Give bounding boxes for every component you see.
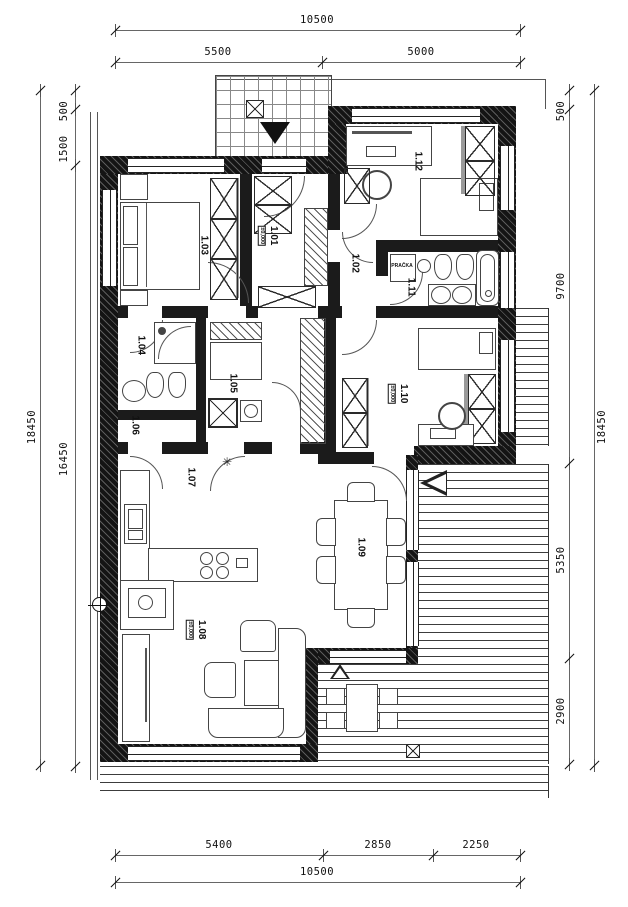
room-id: 1.12 [412, 152, 423, 171]
dining-chair [386, 556, 406, 584]
wall-interior-1.02-1.11 [376, 252, 388, 276]
room-id: 1.02 [349, 254, 360, 273]
room-label-1.02: 1.02 [349, 243, 360, 283]
dining-chair [316, 556, 336, 584]
dim-tick [588, 84, 601, 97]
door-arc-vestibule [272, 382, 301, 411]
dim-tick [69, 760, 82, 773]
wall-interior [162, 306, 208, 318]
bidet [434, 254, 452, 280]
wardrobe-corridor [300, 318, 326, 444]
wall-interior-1.04-1.05 [196, 318, 206, 442]
outdoor-table [346, 684, 378, 732]
room-id: 1.06 [129, 416, 140, 435]
dim-label-bottom-seg1: 5400 [179, 839, 259, 851]
dining-chair [347, 608, 375, 628]
paving-edge-line [90, 112, 91, 780]
deck-bottom-strip [100, 766, 549, 798]
room-label-1.11: 1.11 [405, 267, 416, 307]
wall-interior [244, 442, 272, 454]
dim-label-right-seg4: 2900 [555, 671, 567, 751]
dim-tick [563, 652, 576, 665]
window-bedroom-1.10-right [500, 340, 515, 432]
cabinet-xbox [258, 286, 316, 308]
dim-line-bottom-total [115, 882, 520, 883]
dim-label-right-seg3: 5350 [555, 520, 567, 600]
dim-tick [563, 457, 576, 470]
dim-tick [514, 56, 527, 69]
wardrobe-xbox [210, 258, 238, 300]
dim-label-right-seg1: 500 [555, 71, 567, 151]
dim-tick [563, 758, 576, 771]
dim-line-left-total [40, 90, 41, 766]
plant-icon [333, 668, 347, 678]
armchair [204, 662, 236, 698]
wall-interior [376, 306, 498, 318]
wall-interior [118, 442, 128, 454]
wardrobe-xbox [210, 178, 238, 220]
dim-line-top-total [115, 30, 520, 31]
sofa-corner [208, 708, 284, 738]
nightstand [120, 174, 148, 200]
toilet [168, 372, 186, 398]
wardrobe-xbox [465, 126, 495, 162]
nightstand [120, 290, 148, 306]
stove-burner [216, 552, 229, 565]
elevation-badge: ±0,000 [186, 619, 194, 640]
dim-tick [588, 759, 601, 772]
door-arc-1.10 [342, 320, 377, 355]
window-dining-right [406, 470, 419, 550]
dim-label-left-total: 18450 [26, 387, 38, 467]
room-label-1.12: 1.12 [412, 141, 423, 181]
dim-label-top-total: 10500 [277, 14, 357, 26]
bed-pillow [123, 247, 138, 286]
deck-post [406, 744, 420, 758]
roof-overhang-line [545, 79, 546, 109]
wall-interior [118, 306, 128, 318]
paving-edge-line [97, 112, 98, 780]
room-id: 1.07 [185, 468, 196, 487]
wardrobe-xbox [465, 160, 495, 196]
dim-tick [514, 876, 527, 889]
dim-tick [109, 876, 122, 889]
entry-door-opening [262, 158, 306, 173]
window-bath-1.11-right [500, 252, 515, 308]
outdoor-chair [326, 712, 345, 729]
wardrobe-xbox [210, 218, 238, 260]
washbasin [452, 286, 472, 304]
window-bedroom-1.03-left [102, 190, 117, 286]
room-id: 1.09 [355, 538, 366, 557]
dim-tick [69, 103, 82, 116]
bathtub [476, 250, 499, 306]
dim-tick [514, 24, 527, 37]
tv-screen [145, 648, 147, 722]
wall-interior [162, 442, 208, 454]
bed-blanket-line [146, 203, 147, 287]
desk-chair [438, 402, 466, 430]
room-id: 1.11 [405, 278, 416, 297]
dim-line-right-total [594, 90, 595, 765]
bathroom-sink [417, 259, 431, 273]
wall-interior [246, 306, 258, 318]
room-label-1.05: 1.05 [227, 363, 238, 403]
dim-label-left-seg3: 16450 [58, 419, 70, 499]
room-id: 1.05 [227, 374, 238, 393]
wall-interior [318, 306, 342, 318]
kitchen-sink-b [128, 509, 143, 529]
dim-tick [34, 759, 47, 772]
bed-pillow [123, 206, 138, 245]
stove-burner [200, 552, 213, 565]
desk-monitor [352, 131, 412, 134]
cabinet-xbox [254, 176, 292, 206]
dim-label-top-seg2: 5000 [381, 46, 461, 58]
terrace-column [246, 100, 264, 118]
dim-tick [69, 159, 82, 172]
dim-tick [69, 84, 82, 97]
dim-label-bottom-seg3: 2250 [436, 839, 516, 851]
stove-panel [236, 558, 248, 568]
room-label-1.06: 1.06 [129, 405, 140, 445]
washbasin [122, 380, 146, 402]
armchair [240, 620, 276, 652]
dim-label-left-seg2: 1500 [58, 109, 70, 189]
terrace-entry-arrow-icon [427, 474, 446, 492]
entrance-arrow-icon [260, 122, 290, 144]
window-living-bottom [128, 746, 300, 761]
stove-burner [216, 566, 229, 579]
dining-chair [386, 518, 406, 546]
stove-burner [200, 566, 213, 579]
desk-keyboard [366, 146, 396, 157]
shower-head [158, 327, 166, 335]
toilet [456, 254, 474, 280]
coffee-table [244, 660, 280, 706]
elevation-badge: ±0,000 [258, 225, 266, 246]
room-label-1.10: 1.10 ±0,000 [388, 374, 408, 414]
wall-interior-1.01-1.02 [328, 262, 340, 306]
wall-interior-dining-top [318, 452, 374, 464]
boiler-dial [244, 404, 258, 418]
dim-label-top-seg1: 5500 [178, 46, 258, 58]
entry-terrace-tiles [215, 75, 332, 158]
dim-tick [109, 24, 122, 37]
wardrobe-xbox [342, 412, 368, 448]
deck-right-upper [516, 308, 549, 446]
dim-tick [34, 84, 47, 97]
washbasin [431, 286, 451, 304]
room-id: 1.04 [135, 336, 146, 355]
wall-interior-1.01-1.02 [328, 174, 340, 230]
kitchen-sink-b [128, 530, 143, 540]
room-label-1.08: 1.08 ±0,000 [186, 610, 206, 650]
dim-tick [109, 849, 122, 862]
door-arc-dining [372, 466, 407, 501]
outdoor-chair [326, 688, 345, 705]
outdoor-chair [379, 712, 398, 729]
dim-tick [109, 56, 122, 69]
dim-line-left-segments [75, 90, 76, 766]
bidet [146, 372, 164, 398]
fireplace-flue [138, 595, 153, 610]
wardrobe-xbox [344, 168, 370, 204]
room-id: 1.03 [198, 236, 209, 255]
floor-plan: 10500 5500 5000 5400 2850 2250 10500 184… [0, 0, 628, 907]
room-id: 1.10 [397, 384, 408, 403]
outdoor-chair [379, 688, 398, 705]
room-label-1.07: 1.07 [185, 457, 196, 497]
dim-tick [317, 849, 330, 862]
window-dining-right [406, 562, 419, 646]
shelf-1.05 [210, 322, 262, 340]
wardrobe-xbox [468, 374, 496, 410]
wardrobe-xbox [342, 378, 368, 414]
elevation-badge: ±0,000 [388, 383, 396, 404]
room-label-1.01: 1.01 ±0,000 [258, 216, 278, 256]
room-label-1.04: 1.04 [135, 325, 146, 365]
survey-marker-icon [92, 597, 107, 612]
dim-label-right-total: 18450 [596, 387, 608, 467]
dim-label-right-seg2: 9700 [555, 246, 567, 326]
room-id: 1.01 [267, 226, 278, 245]
bed-pillow [479, 332, 493, 354]
room-label-1.03: 1.03 [198, 225, 209, 265]
room-label-1.09: 1.09 [355, 527, 366, 567]
window-dining-bottom [330, 650, 406, 664]
dining-chair [316, 518, 336, 546]
wall-exterior-block-bottom [414, 446, 516, 464]
wardrobe-hall-1.01 [304, 208, 328, 286]
snowflake-icon: ✳ [222, 456, 232, 468]
dining-chair [347, 482, 375, 502]
window-bedroom-1.03-top [128, 158, 224, 173]
dim-tick [316, 56, 329, 69]
room-id: 1.08 [195, 620, 206, 639]
dim-label-bottom-total: 10500 [277, 866, 357, 878]
window-bedroom-1.12-right [500, 146, 515, 210]
window-bedroom-1.12-top [352, 108, 480, 123]
dim-label-bottom-seg2: 2850 [338, 839, 418, 851]
